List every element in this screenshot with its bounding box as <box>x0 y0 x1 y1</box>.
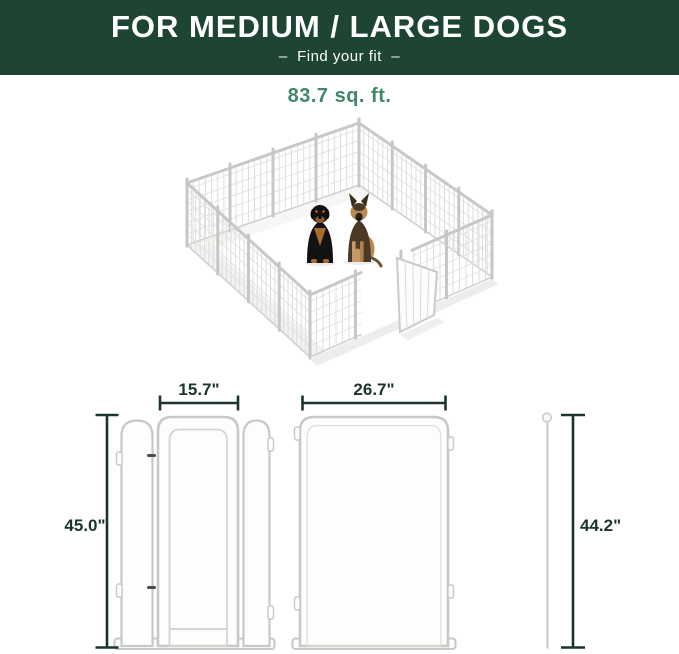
page-subtitle: – Find your fit – <box>0 44 679 65</box>
panel-width-dim-label: 26.7" <box>353 380 394 399</box>
ground-stake <box>543 413 552 648</box>
dimension-diagrams: 45.0" 15.7" 26.7" 44.2" <box>0 380 679 654</box>
height-dimension-442: 44.2" <box>561 415 621 648</box>
height-dimension-45: 45.0" <box>64 415 118 648</box>
area-size-label: 83.7 sq. ft. <box>0 85 679 108</box>
door-hinge <box>147 586 156 589</box>
door-width-dim-label: 15.7" <box>178 380 219 399</box>
door-panel-diagram <box>115 417 275 649</box>
width-dimension-267: 26.7" <box>303 380 446 411</box>
stake-height-dim-label: 44.2" <box>580 516 621 535</box>
header-banner: FOR MEDIUM / LARGE DOGS – Find your fit … <box>0 0 679 75</box>
door-hinge <box>147 454 156 457</box>
playpen-illustration <box>160 110 530 380</box>
width-dimension-157: 15.7" <box>160 380 238 411</box>
german-shepherd-dog-icon <box>344 193 381 266</box>
regular-panel-diagram <box>293 417 456 649</box>
page-title: FOR MEDIUM / LARGE DOGS <box>0 0 679 44</box>
open-door-panel <box>397 258 445 340</box>
product-infographic: FOR MEDIUM / LARGE DOGS – Find your fit … <box>0 0 679 654</box>
height-dim-label: 45.0" <box>64 516 105 535</box>
